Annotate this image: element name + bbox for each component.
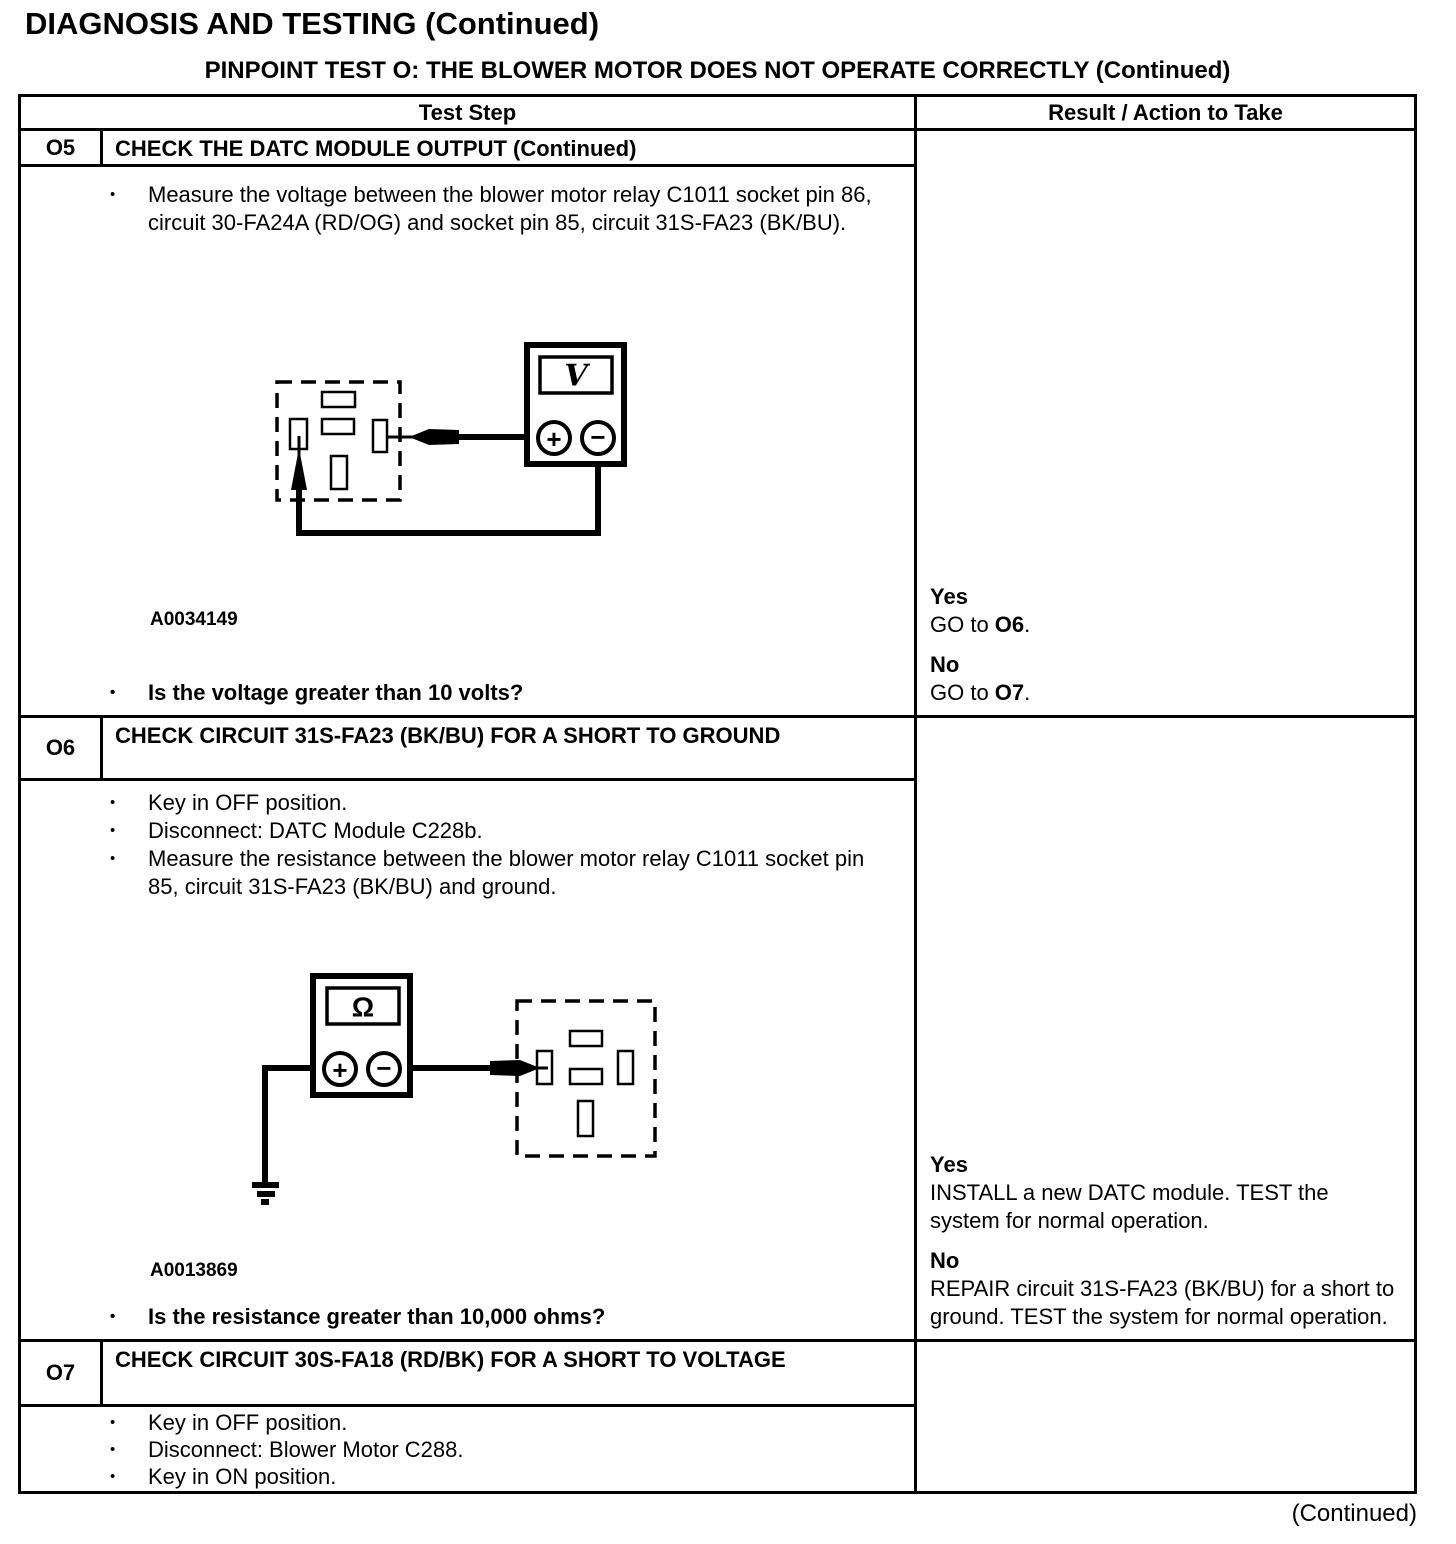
bullet-icon: • xyxy=(110,181,148,237)
bullet-icon: • xyxy=(110,1303,148,1331)
step-body: • Measure the voltage between the blower… xyxy=(21,167,914,715)
test-step-cell-o7: O7 CHECK CIRCUIT 30S-FA18 (RD/BK) FOR A … xyxy=(21,1342,917,1491)
instruction-list: • Key in OFF position. • Disconnect: Blo… xyxy=(21,1409,914,1490)
test-row-o7: O7 CHECK CIRCUIT 30S-FA18 (RD/BK) FOR A … xyxy=(21,1342,1414,1491)
bullet-icon: • xyxy=(110,817,148,845)
result-cell-o7 xyxy=(917,1342,1414,1491)
step-id: O6 xyxy=(21,718,103,778)
svg-text:+: + xyxy=(546,424,561,454)
pinpoint-test-table: Test Step Result / Action to Take O5 CHE… xyxy=(18,94,1417,1494)
action-yes: INSTALL a new DATC module. TEST the syst… xyxy=(930,1179,1404,1235)
socket-pin xyxy=(322,392,355,407)
bullet-icon: • xyxy=(110,845,148,901)
result-cell-o6: Yes INSTALL a new DATC module. TEST the … xyxy=(917,718,1414,1339)
relay-socket-outline xyxy=(517,1001,655,1156)
step-title-row: O5 CHECK THE DATC MODULE OUTPUT (Continu… xyxy=(21,131,914,167)
step-body: • Key in OFF position. • Disconnect: DAT… xyxy=(21,781,914,1339)
meter-body: V + − xyxy=(527,345,624,464)
result-cell-o5: Yes GO to O6. No GO to O7. xyxy=(917,131,1414,715)
figure-label: A0013869 xyxy=(150,1260,914,1282)
test-step-cell-o6: O6 CHECK CIRCUIT 31S-FA23 (BK/BU) FOR A … xyxy=(21,718,917,1339)
bullet-icon: • xyxy=(110,1436,148,1463)
socket-pin xyxy=(373,420,387,452)
socket-pin xyxy=(578,1101,593,1136)
step-instruction-bullet: • Disconnect: Blower Motor C288. xyxy=(21,1436,914,1463)
action-yes: GO to O6. xyxy=(930,611,1404,639)
verdict-yes-label: Yes xyxy=(930,583,1404,611)
bullet-icon: • xyxy=(110,1463,148,1490)
manual-page: DIAGNOSIS AND TESTING (Continued) PINPOI… xyxy=(0,0,1456,1544)
svg-text:+: + xyxy=(332,1055,347,1085)
test-probe-icon xyxy=(409,429,459,445)
test-step-cell-o5: O5 CHECK THE DATC MODULE OUTPUT (Continu… xyxy=(21,131,917,715)
step-title: CHECK CIRCUIT 31S-FA23 (BK/BU) FOR A SHO… xyxy=(103,718,914,778)
table-header-row: Test Step Result / Action to Take xyxy=(21,97,1414,131)
instruction-text: Measure the resistance between the blowe… xyxy=(148,845,878,901)
ohmmeter-test-diagram: Ω + − xyxy=(252,971,657,1233)
ohmmeter-symbol: Ω xyxy=(352,992,374,1023)
step-title: CHECK THE DATC MODULE OUTPUT (Continued) xyxy=(103,131,914,164)
step-instruction-bullet: • Disconnect: DATC Module C228b. xyxy=(21,817,914,845)
test-row-o6: O6 CHECK CIRCUIT 31S-FA23 (BK/BU) FOR A … xyxy=(21,718,1414,1342)
bullet-icon: • xyxy=(110,679,148,707)
step-instruction-bullet: • Key in OFF position. xyxy=(21,789,914,817)
test-row-o5: O5 CHECK THE DATC MODULE OUTPUT (Continu… xyxy=(21,131,1414,718)
instruction-text: Disconnect: Blower Motor C288. xyxy=(148,1436,463,1463)
step-id: O5 xyxy=(21,131,103,164)
action-no: GO to O7. xyxy=(930,679,1404,707)
step-title: CHECK CIRCUIT 30S-FA18 (RD/BK) FOR A SHO… xyxy=(103,1342,914,1404)
socket-pin xyxy=(331,456,347,489)
meter-body: Ω + − xyxy=(313,976,410,1095)
step-instruction-bullet: • Key in OFF position. xyxy=(21,1409,914,1436)
voltmeter-symbol: V xyxy=(564,359,590,394)
instruction-text: Key in OFF position. xyxy=(148,789,347,817)
svg-text:−: − xyxy=(590,422,605,452)
voltmeter-test-diagram: V + − xyxy=(275,340,630,552)
page-title: DIAGNOSIS AND TESTING (Continued) xyxy=(25,6,599,42)
socket-pin xyxy=(618,1051,633,1084)
ground-symbol-icon xyxy=(252,1185,279,1202)
column-header-result: Result / Action to Take xyxy=(917,97,1414,128)
step-body: • Key in OFF position. • Disconnect: Blo… xyxy=(21,1407,914,1491)
instruction-text: Measure the voltage between the blower m… xyxy=(148,181,878,237)
verdict-no-label: No xyxy=(930,1247,1404,1275)
step-instruction-bullet: • Measure the voltage between the blower… xyxy=(21,181,914,237)
pinpoint-test-title: PINPOINT TEST O: THE BLOWER MOTOR DOES N… xyxy=(18,57,1417,85)
footer-continued: (Continued) xyxy=(18,1500,1417,1528)
step-question: • Is the resistance greater than 10,000 … xyxy=(21,1303,914,1331)
instruction-list: • Key in OFF position. • Disconnect: DAT… xyxy=(21,789,914,901)
instruction-text: Key in ON position. xyxy=(148,1463,336,1490)
step-question: • Is the voltage greater than 10 volts? xyxy=(21,679,914,707)
instruction-text: Disconnect: DATC Module C228b. xyxy=(148,817,483,845)
step-id: O7 xyxy=(21,1342,103,1404)
step-title-row: O7 CHECK CIRCUIT 30S-FA18 (RD/BK) FOR A … xyxy=(21,1342,914,1407)
step-instruction-bullet: • Key in ON position. xyxy=(21,1463,914,1490)
svg-text:−: − xyxy=(376,1053,391,1083)
action-no: REPAIR circuit 31S-FA23 (BK/BU) for a sh… xyxy=(930,1275,1404,1331)
verdict-yes-label: Yes xyxy=(930,1151,1404,1179)
question-text: Is the voltage greater than 10 volts? xyxy=(148,679,523,707)
socket-pin xyxy=(322,419,354,434)
test-probe-icon xyxy=(291,448,307,490)
column-header-test-step: Test Step xyxy=(21,97,917,128)
instruction-text: Key in OFF position. xyxy=(148,1409,347,1436)
bullet-icon: • xyxy=(110,1409,148,1436)
test-probe-icon xyxy=(490,1060,540,1076)
question-text: Is the resistance greater than 10,000 oh… xyxy=(148,1303,605,1331)
step-title-row: O6 CHECK CIRCUIT 31S-FA23 (BK/BU) FOR A … xyxy=(21,718,914,781)
verdict-no-label: No xyxy=(930,651,1404,679)
socket-pin xyxy=(570,1069,602,1084)
step-instruction-bullet: • Measure the resistance between the blo… xyxy=(21,845,914,901)
bullet-icon: • xyxy=(110,789,148,817)
figure-label: A0034149 xyxy=(150,609,914,631)
socket-pin xyxy=(570,1031,602,1046)
